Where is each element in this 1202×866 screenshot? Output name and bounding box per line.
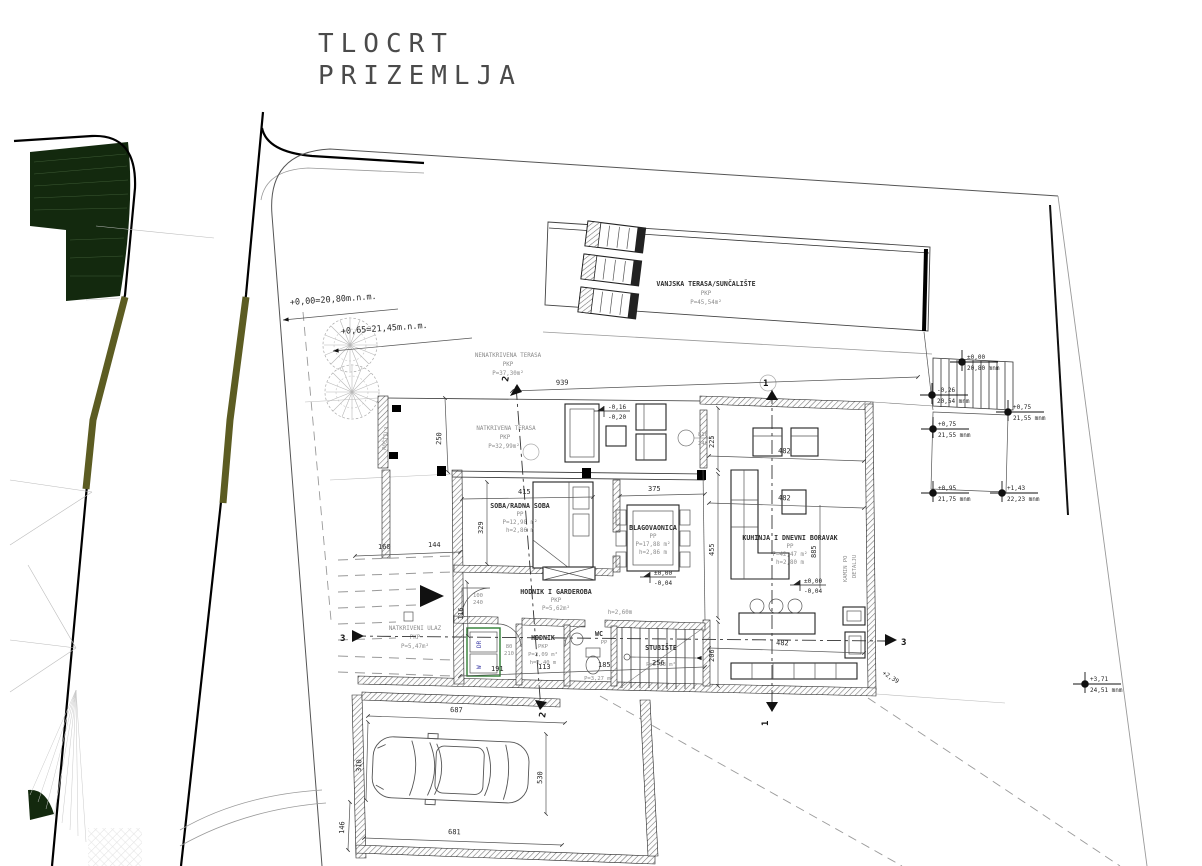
spot-elev-level: +0,75 (1013, 404, 1031, 411)
spot-elev-level: +0,75 (938, 421, 956, 428)
drawing-title: TLOCRT PRIZEMLJA (318, 29, 522, 91)
dim-160: 160 (378, 543, 391, 551)
building: ROŠTILJ (305, 353, 876, 696)
paving-dashes (338, 556, 452, 676)
dim-375: 375 (648, 485, 661, 493)
road-branch-top (262, 128, 424, 163)
slope-fan-lines (30, 690, 86, 842)
room-area-blagovaonica: P=17,88 m² (636, 541, 671, 548)
room-area-kuhinja: P=42,47 m² (773, 551, 808, 558)
dim-681: 681 (448, 828, 461, 836)
dim-225: 225 (708, 435, 716, 448)
ground-line-east (876, 694, 1005, 703)
floor-plan-drawing: +0,00=20,80m.n.m. +0,65=21,45m.n.m. (0, 0, 1202, 866)
level-terrace-a: -0,16 (608, 404, 626, 411)
slope-label: +2,39 (881, 670, 900, 686)
exterior-stairs (873, 332, 1013, 492)
dim-687: 687 (450, 706, 463, 714)
washer-label: W (476, 665, 483, 669)
parcel-boundary-right (1058, 196, 1147, 866)
room-height-kuhinja: h=2,80 m (776, 560, 804, 566)
door-size-1w: 100 (473, 593, 483, 599)
spot-elev-level: +0,95 (938, 485, 956, 492)
room-code-soba: PP (517, 512, 524, 518)
garage (352, 692, 658, 864)
room-label-ulaz: NATKRIVENI ULAZ (389, 626, 442, 632)
room-code-kuhinja: PP (787, 544, 794, 550)
door-size-2w: 80 (506, 644, 513, 650)
level-floor2-a: ±0,00 (804, 578, 822, 585)
green-area-upper (30, 142, 130, 301)
benchmark-1: +0,00=20,80m.n.m. (283, 292, 398, 320)
dim-206: 206 (708, 649, 716, 662)
paving-patch (88, 828, 142, 866)
room-label-stubiste: STUBIŠTE (645, 643, 677, 652)
wall-corridor-north-3 (605, 620, 705, 630)
dryer-label: DR (476, 640, 483, 648)
street-corner-curve2 (180, 803, 326, 846)
dim-885: 885 (810, 545, 818, 558)
room-code-nenatkrivena: PKP (503, 362, 514, 368)
benchmark-2-label: +0,65=21,45m.n.m. (341, 321, 428, 337)
spot-elev-alt: 21,55 mnm (938, 432, 971, 439)
section-3-left: 3 (340, 634, 345, 644)
door-size-1h: 240 (473, 600, 483, 606)
retaining-wall-east (223, 297, 246, 503)
car (371, 731, 530, 809)
fireplace-note-line1: KAMIN PO (843, 556, 849, 583)
room-area-hodnik-garderoba: P=5,62m² (542, 605, 570, 612)
dim-530: 530 (536, 771, 544, 784)
room-area-soba: P=12,98 m² (503, 519, 538, 526)
title-line1: TLOCRT (318, 29, 454, 59)
street-corner-curve1 (180, 790, 322, 830)
room-code-hodnik: PKP (538, 644, 549, 650)
dim-185: 185 (598, 661, 611, 669)
section-1-bottom: 1 (761, 721, 771, 726)
dim-329: 329 (477, 521, 485, 534)
spot-elev-level: +3,71 (1090, 676, 1108, 683)
dim-310: 310 (355, 759, 363, 772)
room-area-natkrivena: P=32,99m² (488, 443, 519, 450)
entrance-arrow-icon (420, 585, 444, 607)
garden-dashed-line (303, 312, 331, 620)
wall-soba-dining (613, 480, 620, 532)
room-height-hodnik-garderoba: h=2,60m (608, 610, 633, 616)
door-size-2h: 210 (504, 651, 514, 657)
wardrobe (543, 567, 595, 580)
dim-250: 250 (435, 432, 443, 445)
wc-fixtures (571, 633, 600, 674)
road-curb-curve (261, 168, 424, 200)
dim-191: 191 (491, 665, 504, 673)
room-label-wc: WC (595, 630, 603, 638)
green-wedge-bottom (28, 790, 54, 820)
bed (533, 482, 593, 568)
window-code-h: 240 (698, 441, 708, 447)
spot-elev-level: -0,26 (937, 387, 955, 394)
fireplace: KAMIN PO DETALJU (843, 555, 865, 658)
entrance: NATKRIVENI ULAZ PKP P=5,47m² (389, 585, 444, 650)
level-terrace-b: -0,20 (608, 414, 626, 421)
section-2-bottom: 2 (538, 711, 549, 718)
spot-elev-level: +1,43 (1007, 485, 1025, 492)
room-area-hodnik: P=2,09 m² (528, 651, 558, 658)
room-height-blagovaonica: h=2,86 m (639, 550, 667, 556)
tree-icon (325, 365, 379, 419)
wall-corridor-north-2 (522, 618, 585, 627)
dim-146: 146 (338, 821, 346, 834)
dim-116: 116 (457, 607, 465, 620)
kitchen-island (739, 599, 815, 634)
fireplace-note-line2: DETALJU (852, 555, 858, 578)
dim-256: 256 (652, 659, 665, 667)
wall-laundry-hall (516, 624, 522, 685)
room-label-hodnik-garderoba: HODNIK I GARDEROBA (520, 588, 591, 596)
room-area-nenatkrivena: P=37,30m² (492, 370, 523, 377)
driveway-dash-2 (868, 698, 1120, 866)
north-wall-kitchen (700, 396, 873, 410)
room-label-vanjska-terasa: VANJSKA TERASA/SUNČALIŠTE (656, 279, 755, 288)
room-code-natkrivena: PKP (500, 435, 511, 441)
spot-elev-alt: 20,80 mnm (967, 365, 1000, 372)
room-area-wc: P=3,27 m² (584, 675, 614, 682)
spot-elev-alt: 20,54 mnm (937, 398, 970, 405)
level-floor1-b: -0,04 (654, 580, 672, 587)
drawing-sheet: +0,00=20,80m.n.m. +0,65=21,45m.n.m. (0, 0, 1202, 866)
room-label-blagovaonica: BLAGOVAONICA (629, 524, 677, 532)
retaining-wall-west (86, 297, 125, 489)
window-code-w: 810 (698, 432, 708, 438)
dim-113: 113 (538, 663, 551, 671)
wall-kitchen-dining-upper (700, 410, 707, 468)
room-code-wc: PP (601, 640, 608, 646)
section-3-right: 3 (901, 638, 906, 648)
terrace-sofa-set (565, 404, 666, 462)
dim-482b: 482 (778, 494, 791, 502)
spot-elev-alt: 21,55 mnm (1013, 415, 1046, 422)
bbq-alcove: ROŠTILJ (378, 396, 401, 468)
room-area-vanjska-terasa: P=45,54m² (690, 299, 721, 306)
sun-lounger (578, 221, 646, 319)
room-code-hodnik-garderoba: PKP (551, 598, 562, 604)
dim-939: 939 (556, 379, 569, 387)
room-code-blagovaonica: PP (650, 534, 657, 540)
room-area-ulaz: P=5,47m² (401, 643, 429, 650)
title-line2: PRIZEMLJA (318, 61, 522, 91)
room-code-ulaz: PKP (410, 635, 421, 641)
level-floor2-b: -0,04 (804, 588, 822, 595)
room-label-soba: SOBA/RADNA SOBA (490, 502, 550, 510)
level-floor1-a: ±0,00 (654, 570, 672, 577)
interior-stairs (620, 627, 703, 689)
door-code-bubble (523, 444, 539, 460)
room-label-kuhinja: KUHINJA I DNEVNI BORAVAK (742, 534, 837, 542)
east-wall (865, 404, 876, 690)
spot-elev-alt: 21,75 mnm (938, 496, 971, 503)
dim-482a: 482 (778, 447, 791, 455)
room-label-nenatkrivena: NENATKRIVENA TERASA (475, 353, 542, 359)
room-code-vanjska-terasa: PKP (701, 291, 712, 297)
section-1-top: 1 (763, 379, 768, 389)
benchmark-1-label: +0,00=20,80m.n.m. (290, 292, 377, 308)
room-label-natkrivena: NATKRIVENA TERASA (476, 426, 536, 432)
spot-elev-level: ±0,00 (967, 354, 985, 361)
wall-soba-dining-2 (613, 556, 620, 572)
room-height-soba: h=2,86 m (506, 528, 534, 534)
sun-terrace-platform: VANJSKA TERASA/SUNČALIŠTE PKP P=45,54m² (543, 221, 932, 354)
dim-455: 455 (708, 543, 716, 556)
spot-elev-alt: 22,23 mnm (1007, 496, 1040, 503)
west-wall (452, 470, 464, 684)
spot-elev-alt: 24,51 mnm (1090, 687, 1123, 694)
dim-144: 144 (428, 541, 441, 549)
